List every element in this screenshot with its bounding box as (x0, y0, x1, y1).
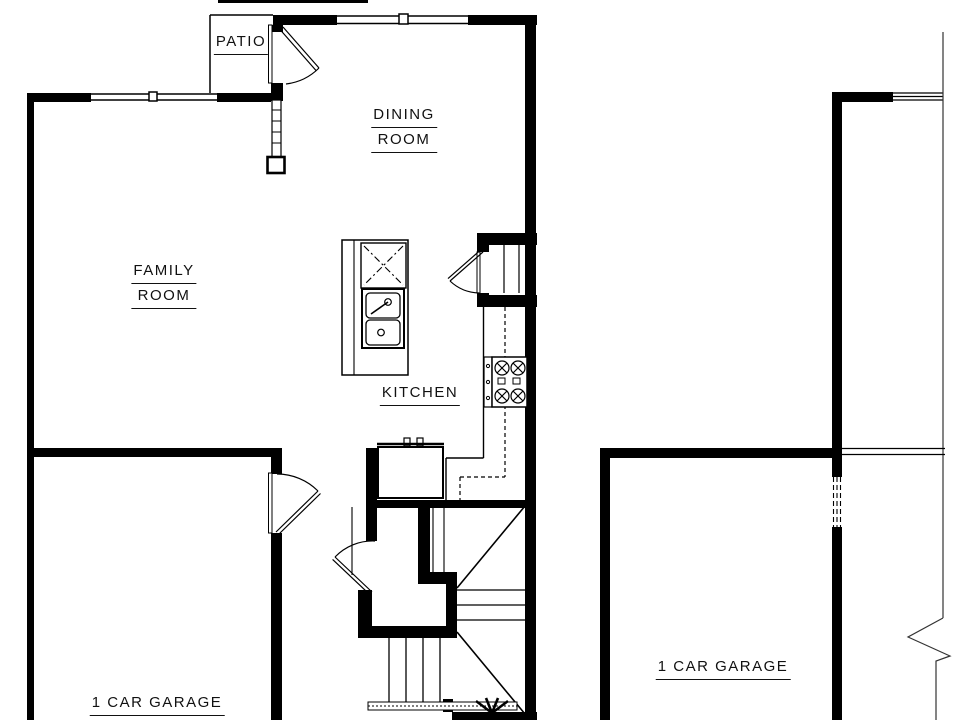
kitchen-island-icon (342, 240, 408, 375)
room-label-patio: PATIO (214, 31, 268, 55)
room-label-garage-right: 1 CAR GARAGE (656, 656, 791, 680)
cooktop-icon (484, 357, 527, 407)
patio-swing-door-icon (269, 25, 320, 84)
kitchen-counter (433, 245, 519, 572)
walls (27, 15, 893, 720)
window-neighbor-unit-icon (893, 93, 943, 100)
patio-door-leaf-icon (268, 100, 285, 173)
pantry-door-icon (448, 250, 483, 293)
garage-firewall-window-icon (834, 477, 841, 527)
room-label-kitchen: KITCHEN (380, 382, 460, 406)
floor-plan: PATIO DINING ROOM FAMILY ROOM KITCHEN 1 … (0, 0, 960, 720)
room-label-family-room: FAMILY ROOM (131, 260, 196, 309)
window-family-room-icon (90, 92, 217, 101)
pantry-shelves-icon (504, 245, 519, 293)
window-dining-room-icon (337, 14, 468, 24)
room-label-dining-room: DINING ROOM (371, 104, 437, 153)
neighbor-wall-thin (842, 449, 945, 455)
garage-entry-door-icon (269, 473, 321, 535)
room-label-garage-left: 1 CAR GARAGE (90, 692, 225, 716)
party-wall-break-line-icon (908, 32, 950, 720)
floor-plan-drawing (0, 0, 960, 720)
hall-sink-icon (377, 438, 444, 498)
